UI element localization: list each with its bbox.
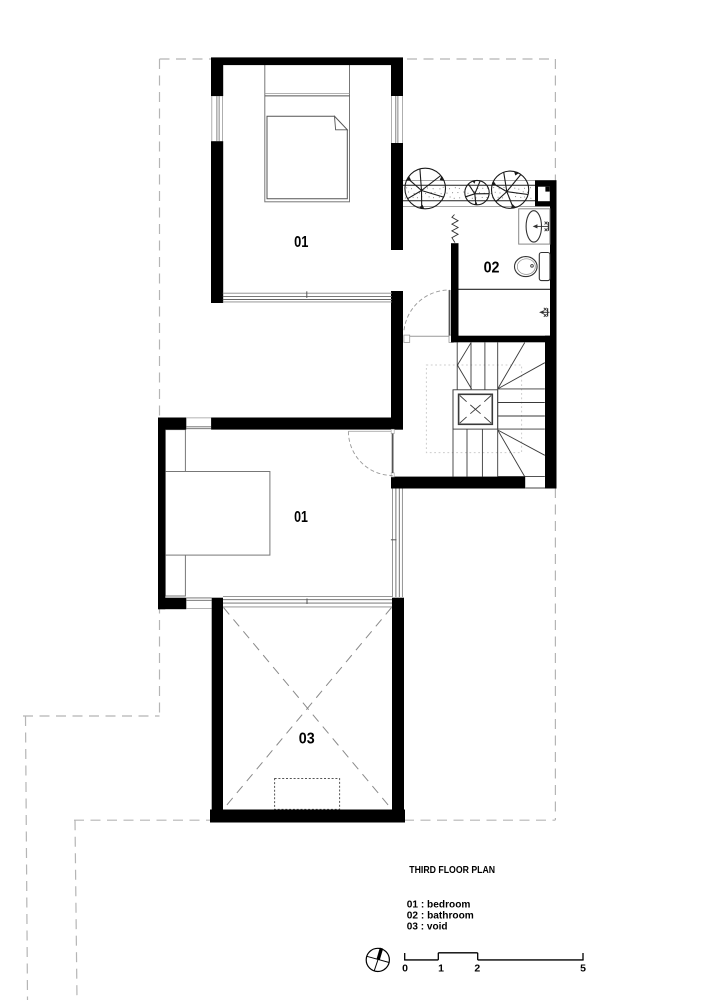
svg-text:0: 0 bbox=[402, 963, 408, 975]
svg-text:2: 2 bbox=[474, 963, 480, 975]
svg-text:THIRD FLOOR PLAN: THIRD FLOOR PLAN bbox=[409, 864, 495, 876]
svg-text:1: 1 bbox=[438, 963, 444, 975]
svg-text:5: 5 bbox=[580, 963, 586, 975]
svg-text:02: 02 bbox=[484, 260, 500, 277]
svg-text:01: 01 bbox=[294, 509, 308, 526]
svg-text:03: 03 bbox=[299, 730, 315, 747]
svg-text:03 : void: 03 : void bbox=[407, 921, 448, 933]
svg-text:01: 01 bbox=[294, 234, 308, 251]
